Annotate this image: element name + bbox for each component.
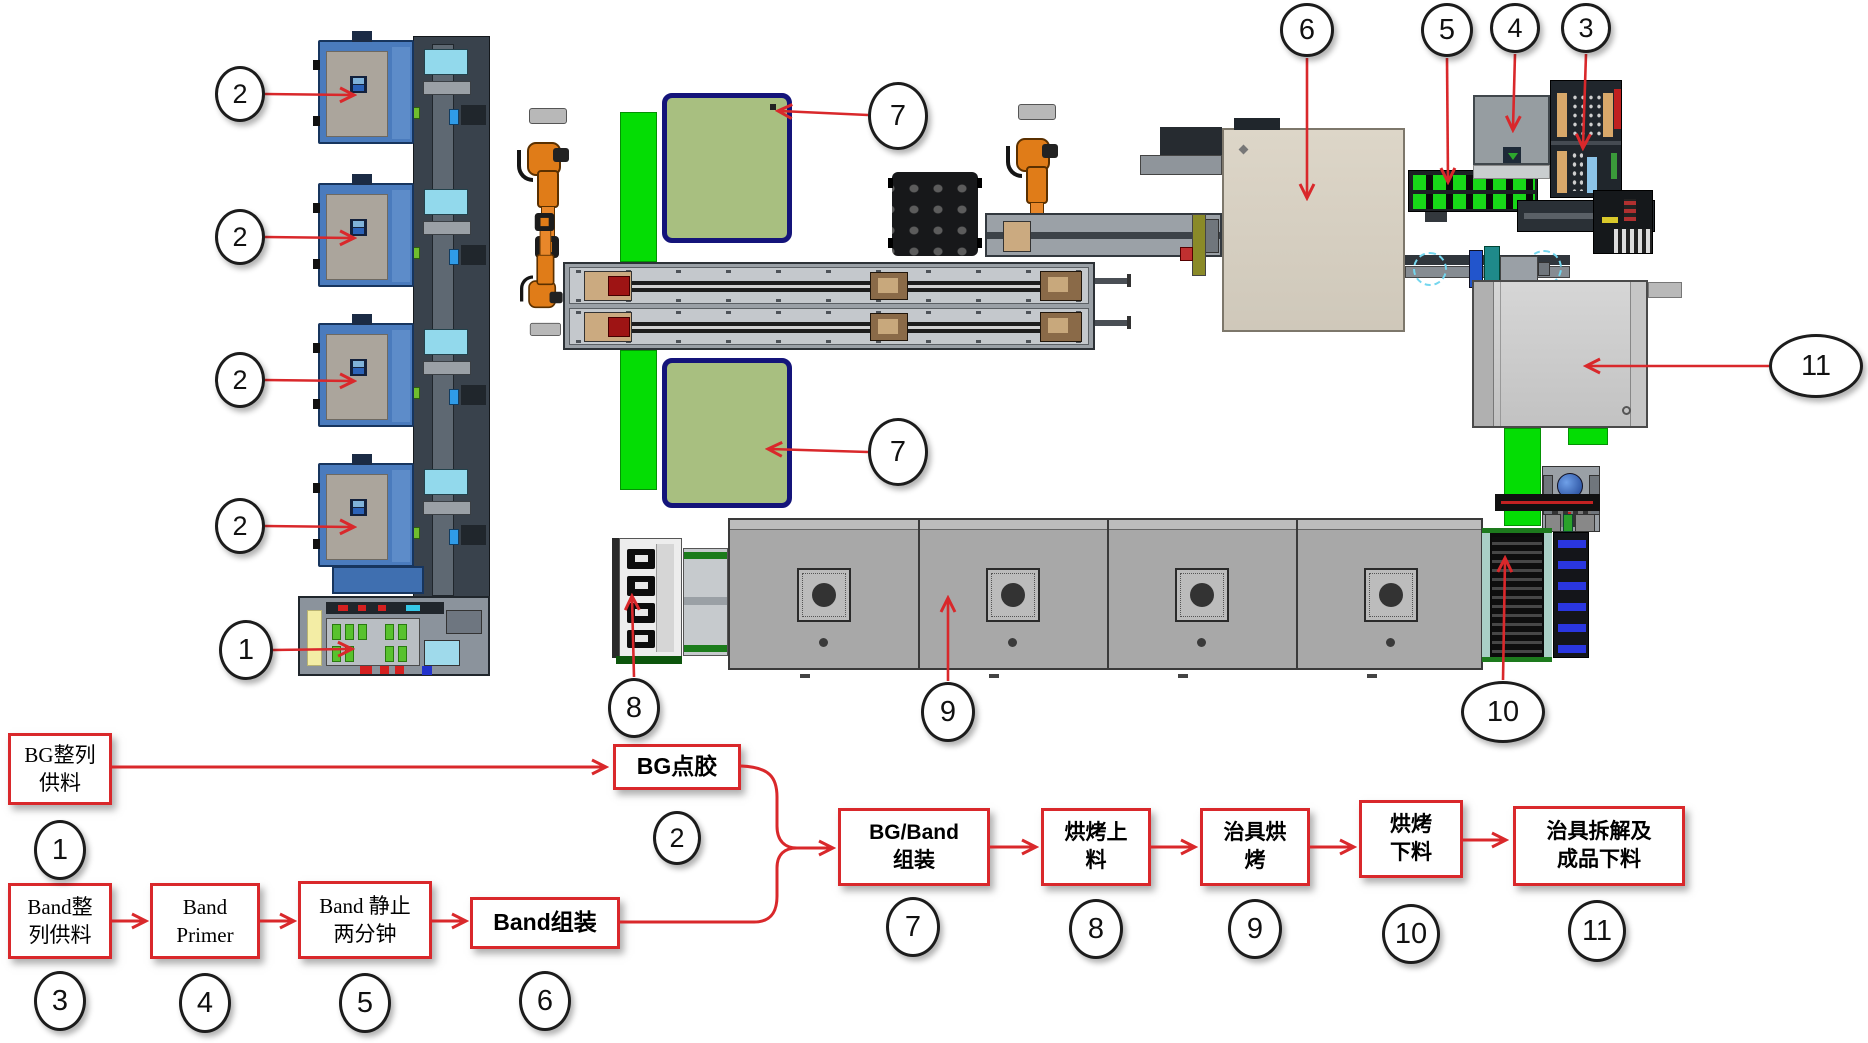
robot-motor [1042,144,1058,158]
robot-arm [536,254,554,285]
yellow-strip [307,610,322,666]
tower-window [424,469,468,495]
flow-circle-6: 6 [519,971,571,1031]
flow-step-number: 10 [1395,918,1427,951]
tower-block [461,385,486,405]
rotary-zone [1413,252,1447,286]
callout-number: 2 [232,222,247,253]
blue-block [332,566,424,594]
flow-box-label: Band Primer [176,893,233,950]
flow-connector-glue [741,766,797,848]
robot-forearm [540,229,551,255]
callout-number: 2 [232,79,247,110]
jig-pallet-bottom [662,358,792,508]
load-slot [627,549,655,569]
machine-port [350,76,367,93]
tower-window [424,49,468,75]
cross-bar [1495,494,1600,511]
shuttle-rail-1 [569,267,1089,304]
callout-number: 9 [940,696,956,729]
shuttle-conveyor [563,262,1095,350]
callout-number: 2 [232,365,247,396]
transfer-strip-unload [1504,428,1541,526]
robot-motor [550,292,563,303]
callout-number: 10 [1487,696,1519,729]
flow-circle-9: 9 [1228,899,1282,959]
conveyor-arm-end [1127,316,1131,329]
callout-circle-oven: 9 [921,682,975,742]
machine-stripe [392,47,410,139]
flow-circle-11: 11 [1568,900,1626,962]
machine-port [350,499,367,516]
rail-carriage [1040,312,1082,342]
machine-port [350,219,367,236]
load-slot [627,630,655,648]
conveyor-arm [1095,278,1129,284]
flow-circle-4: 4 [179,973,231,1033]
machine-foot [313,116,320,126]
conveyor-foot [1425,212,1447,222]
oven-port [812,583,836,607]
flow-step-number: 5 [357,987,373,1020]
machine-cap [1234,118,1280,130]
tray-feeder-machine-2 [318,183,414,287]
robot-base-cap [1018,104,1056,120]
transfer-bar [1140,155,1222,175]
top-bar [326,602,444,614]
robot-arm [537,170,559,208]
machine-front-panel [326,334,388,420]
flow-box-band-rest: Band 静止 两分钟 [298,881,432,959]
gripper-knob [1538,262,1550,276]
flow-box-bake-unload: 烘烤 下料 [1359,800,1463,878]
tower-blue-tab [449,249,459,265]
robot-arm [1026,166,1048,204]
callout-number: 2 [232,511,247,542]
machine-front-panel [326,194,388,280]
flow-circle-2: 2 [653,811,701,865]
callout-number: 3 [1578,13,1593,44]
callout-arrow-pallet-top [780,111,868,115]
pallet-mark [770,104,776,110]
callout-number: 7 [890,100,906,133]
cyan-unit [424,640,460,666]
flow-box-label: BG整列 供料 [24,741,95,798]
primer-unit-base [1473,165,1550,179]
shuttle-rail-2 [569,308,1089,345]
tower-block [461,525,486,545]
bake-load-station [612,538,682,658]
tower-shelf [423,81,471,95]
callout-number: 6 [1299,14,1315,47]
callout-circle-tray2: 2 [215,209,265,265]
gripper-assembly [1500,256,1538,282]
flow-circle-8: 8 [1069,899,1123,959]
oven-port-plate [1364,568,1418,622]
callout-arrow-conveyor [1447,58,1448,180]
oven-port-plate [1175,568,1229,622]
machine-cap [352,314,372,325]
flow-step-number: 1 [52,834,68,867]
rail-red-block [608,317,630,337]
jig-pallet-top [662,93,792,243]
flow-box-band-primer: Band Primer [150,883,260,959]
flow-step-number: 9 [1247,913,1263,946]
unload-machine [1472,280,1648,428]
transfer-strip-upper [620,112,657,262]
callout-circle-bake-unload: 10 [1461,681,1545,743]
flow-box-label: BG点胶 [637,751,718,782]
feeder-end-unit [1593,190,1653,254]
tower-blue-tab [449,109,459,125]
gray-unit [446,610,482,634]
callout-number: 8 [626,692,642,725]
machine-side-tab [1648,282,1682,298]
rail-carriage [870,272,908,300]
baking-oven [728,518,1483,670]
band-feeder-machine [1550,80,1622,198]
machine-front-panel [326,51,388,137]
tower-green-tab [413,387,420,399]
machine-cap [352,174,372,185]
load-station-base [616,656,682,664]
flow-box-jig-bake: 治具烘 烤 [1200,808,1310,886]
flow-circle-10: 10 [1382,904,1440,964]
equipment-layout-diagram: 2 2 2 2 1 7 7 6 5 4 3 11 10 9 8 BG整列 供料 … [0,0,1868,1043]
tower-blue-tab [449,529,459,545]
machine-front-panel [326,474,388,560]
bake-unload-rack [1482,528,1552,662]
flow-step-number: 11 [1582,915,1612,948]
callout-circle-conveyor: 5 [1421,3,1473,57]
tower-shelf [423,361,471,375]
callout-number: 1 [238,634,254,667]
callout-circle-bake-load: 8 [608,678,660,738]
machine-port [350,359,367,376]
conveyor-arm-end [1127,274,1131,287]
flow-step-number: 8 [1088,913,1104,946]
callout-number: 11 [1801,350,1831,383]
flow-box-band-asm: Band组装 [470,897,620,949]
machine-foot [313,539,320,549]
red-block [1180,247,1193,261]
flow-circle-7: 7 [886,897,940,957]
assembly-machine [1222,128,1405,332]
transfer-strip-lower [620,350,657,490]
tower-block [461,245,486,265]
base-feeder-machine [298,596,490,676]
tray-feeder-machine-4 [318,463,414,567]
callout-circle-feeder: 3 [1561,3,1611,53]
oven-port-plate [986,568,1040,622]
callout-number: 5 [1439,14,1455,47]
machine-foot [313,399,320,409]
flow-step-number: 2 [669,823,684,854]
tray-feeder-machine-1 [318,40,414,144]
oven-port [1379,583,1403,607]
machine-foot [313,259,320,269]
machine-foot [313,343,320,353]
callout-number: 7 [890,436,906,469]
callout-circle-base: 1 [219,620,273,680]
oven-infeed-conveyor [683,548,728,656]
oven-port [1001,583,1025,607]
callout-circle-primer: 4 [1490,3,1540,53]
oven-top-strip [730,520,1481,530]
conveyor-arm [1095,320,1129,326]
control-cabinet [1553,532,1589,658]
flow-box-jig-dismantle: 治具拆解及 成品下料 [1513,806,1685,886]
flow-circle-5: 5 [339,973,391,1033]
machine-foot [313,203,320,213]
rail-carriage [870,313,908,341]
machine-stripe [392,330,410,422]
flow-box-label: Band组装 [493,907,597,938]
flow-box-label: 烘烤上 料 [1065,819,1128,876]
load-panel [619,538,682,658]
flow-circle-1: 1 [34,820,86,880]
oven-port-plate [797,568,851,622]
flow-step-number: 6 [537,985,553,1018]
component-panel [326,618,420,666]
primer-unit [1473,95,1550,165]
flow-box-label: BG/Band 组装 [869,819,959,876]
flow-step-number: 7 [905,911,921,944]
tower-shelf [423,221,471,235]
rail-red-block [608,276,630,296]
load-slot [627,576,655,596]
tower-shelf [423,501,471,515]
tower-green-tab [413,527,420,539]
tower-window [424,189,468,215]
flow-circle-3: 3 [34,971,86,1031]
robot-base-cap [530,323,561,336]
olive-post [1192,214,1206,276]
tower-green-tab [413,107,420,119]
tower-block [461,105,486,125]
machine-stripe [392,190,410,282]
flow-box-band-feed: Band整 列供料 [8,883,112,959]
callout-circle-pallet-bottom: 7 [868,418,928,486]
tower-row [413,461,490,581]
flow-box-bg-glue: BG点胶 [613,744,741,790]
flow-box-label: 治具拆解及 成品下料 [1547,818,1652,875]
tower-row [413,41,490,161]
callout-circle-tray3: 2 [215,352,265,408]
tower-green-tab [413,247,420,259]
flow-box-bake-load: 烘烤上 料 [1041,808,1151,886]
flow-step-number: 3 [52,985,68,1018]
flow-box-label: Band 静止 两分钟 [319,892,411,949]
green-pad [1568,428,1608,445]
callout-circle-tray1: 2 [215,66,265,122]
callout-circle-assembly: 6 [1280,3,1334,57]
callout-circle-tray4: 2 [215,498,265,554]
gantry-slider [1003,221,1031,252]
flow-box-label: 烘烤 下料 [1390,811,1432,868]
load-slot [627,603,655,623]
robot-gripper [535,213,555,231]
machine-foot [313,60,320,70]
tower-row [413,181,490,301]
machine-foot [313,483,320,493]
callout-circle-unload: 11 [1769,334,1863,398]
machine-stripe [392,470,410,562]
machine-cap [352,31,372,42]
flow-connector-band [620,848,797,922]
oven-port [1190,583,1214,607]
flow-step-number: 4 [197,987,213,1020]
flow-box-label: 治具烘 烤 [1224,819,1287,876]
tower-blue-tab [449,389,459,405]
flow-box-bg-band-asm: BG/Band 组装 [838,808,990,886]
flow-box-label: Band整 列供料 [27,893,92,950]
robot-base-cap [529,108,567,124]
fixture-pallet [892,172,978,256]
machine-cap [352,454,372,465]
tray-feeder-machine-3 [318,323,414,427]
transfer-unit [1160,127,1222,157]
callout-circle-pallet-top: 7 [868,82,928,150]
callout-number: 4 [1507,13,1522,44]
tower-window [424,329,468,355]
robot-motor [553,148,569,162]
rail-carriage [1040,271,1082,301]
tower-row [413,321,490,441]
flow-box-bg-feed: BG整列 供料 [8,733,112,805]
